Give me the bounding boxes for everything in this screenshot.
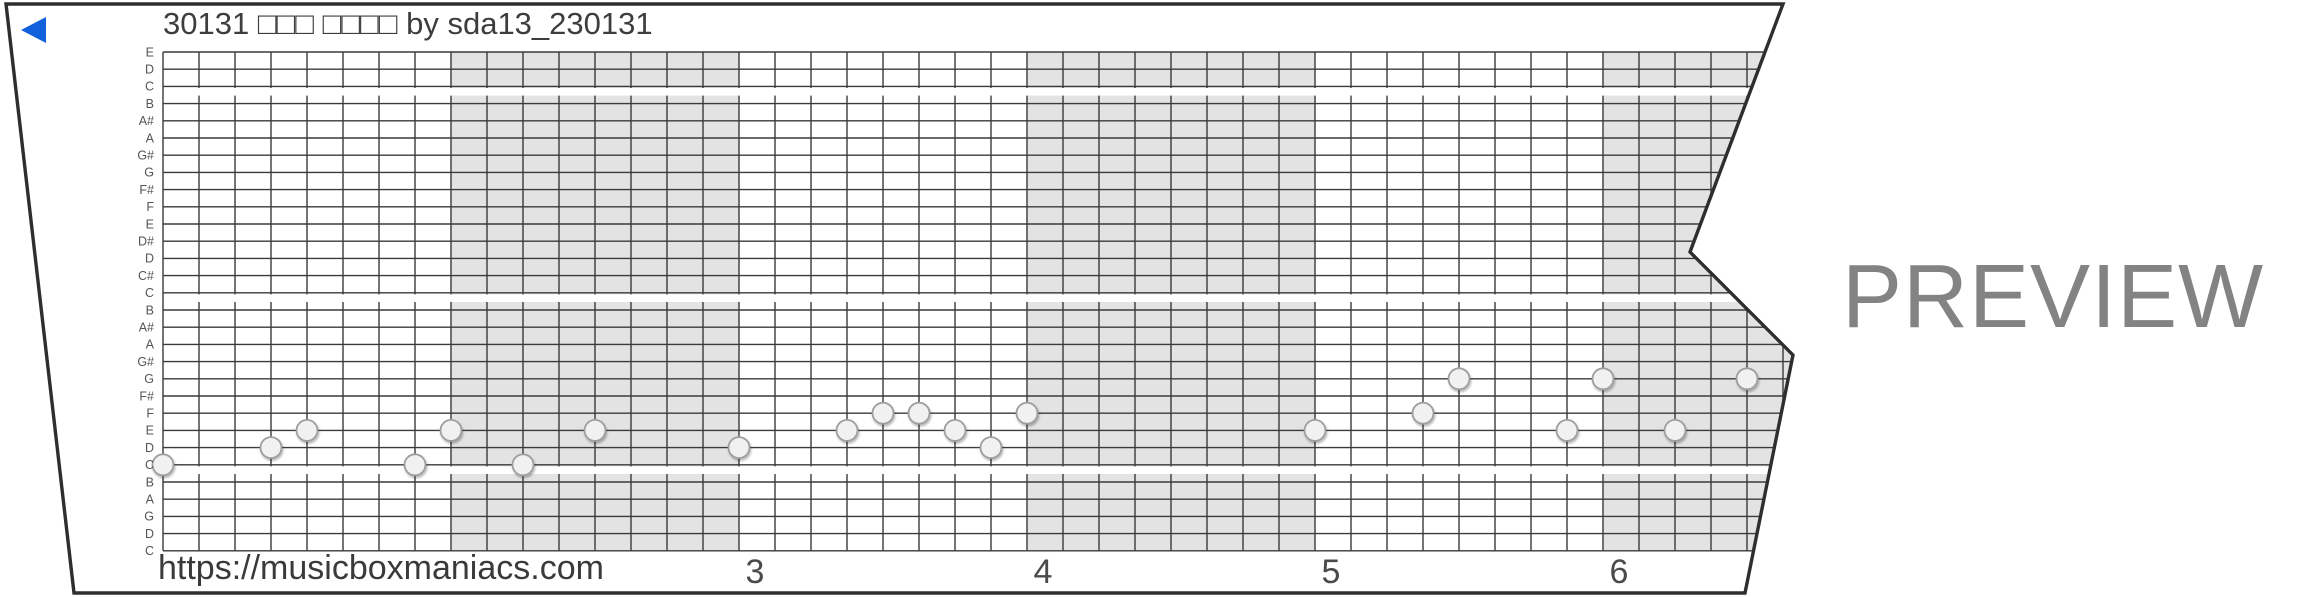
pitch-label: F	[146, 407, 154, 421]
note-hole	[1449, 368, 1470, 389]
pitch-label: A	[146, 131, 155, 145]
note-hole	[513, 454, 534, 475]
note-hole	[1413, 403, 1434, 424]
pitch-label: C	[145, 458, 154, 472]
pitch-label: F#	[139, 389, 154, 403]
pitch-label: F	[146, 200, 154, 214]
pitch-label: C	[145, 286, 154, 300]
pitch-label: F#	[139, 183, 154, 197]
preview-watermark: PREVIEW	[1842, 252, 2264, 342]
pitch-label: D	[145, 527, 154, 541]
note-hole	[1593, 368, 1614, 389]
pitch-label: G	[144, 166, 154, 180]
pitch-label: D#	[138, 235, 154, 249]
site-url: https://musicboxmaniacs.com	[158, 551, 604, 585]
pitch-label: E	[146, 217, 154, 231]
note-hole	[153, 454, 174, 475]
pitch-label: B	[146, 97, 154, 111]
pitch-label: D	[145, 441, 154, 455]
note-hole	[981, 437, 1002, 458]
note-hole	[729, 437, 750, 458]
note-hole	[1305, 420, 1326, 441]
note-hole	[945, 420, 966, 441]
note-hole	[261, 437, 282, 458]
pitch-label: A#	[139, 114, 154, 128]
measure-number: 6	[1610, 553, 1629, 591]
note-hole	[909, 403, 930, 424]
measure-number: 5	[1322, 553, 1341, 591]
octave-break-band	[164, 294, 1901, 302]
pitch-label: D	[145, 63, 154, 77]
pitch-label: D	[145, 252, 154, 266]
note-hole	[585, 420, 606, 441]
pitch-label: G#	[137, 149, 154, 163]
note-hole	[1737, 368, 1758, 389]
pitch-label: E	[146, 45, 154, 59]
octave-break-band	[164, 88, 1901, 96]
measure-number: 4	[1034, 553, 1053, 591]
pitch-label: B	[146, 475, 154, 489]
note-hole	[441, 420, 462, 441]
pitch-label: A#	[139, 321, 154, 335]
pitch-label: G#	[137, 355, 154, 369]
pitch-label: A	[146, 493, 155, 507]
note-hole	[1557, 420, 1578, 441]
pitch-label: C	[145, 544, 154, 558]
note-hole	[837, 420, 858, 441]
note-hole	[405, 454, 426, 475]
note-hole	[1017, 403, 1038, 424]
strip-grid	[153, 52, 1902, 551]
measure-number: 3	[746, 553, 765, 591]
note-hole	[1665, 420, 1686, 441]
pitch-label: G	[144, 510, 154, 524]
note-hole	[873, 403, 894, 424]
pitch-label: A	[146, 338, 155, 352]
pitch-label: C#	[138, 269, 154, 283]
strip-title: 30131 □□□ □□□□ by sda13_230131	[163, 7, 653, 41]
pitch-label: C	[145, 80, 154, 94]
pitch-label: B	[146, 303, 154, 317]
pitch-label: G	[144, 372, 154, 386]
pitch-label: E	[146, 424, 154, 438]
note-hole	[297, 420, 318, 441]
play-icon[interactable]	[0, 0, 60, 60]
play-triangle-shape[interactable]	[21, 17, 46, 43]
music-strip-preview: EDCBA#AG#GF#FED#DC#CBA#AG#GF#FEDCBAGDC34…	[0, 0, 2310, 597]
